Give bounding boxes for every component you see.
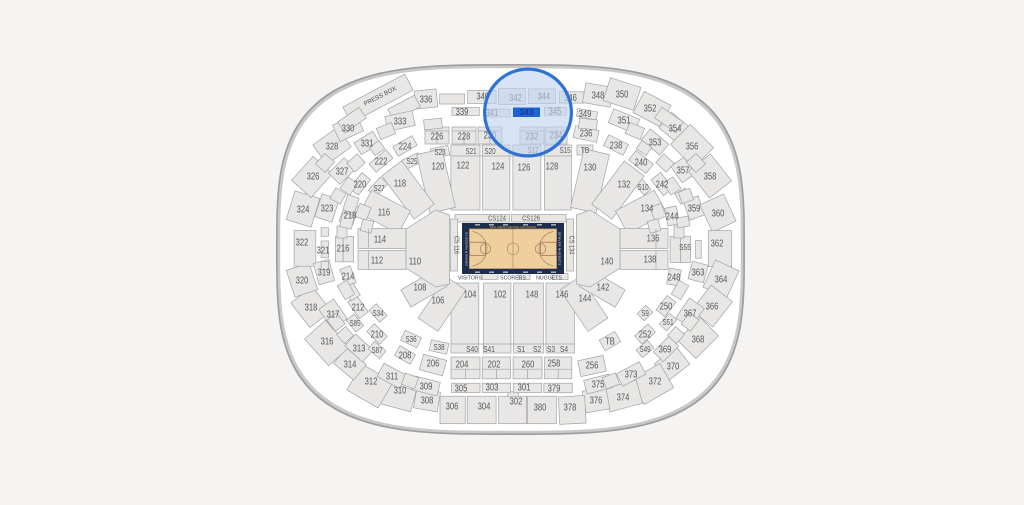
svg-text:303: 303	[486, 381, 499, 392]
svg-text:106: 106	[432, 294, 445, 305]
svg-text:351: 351	[618, 114, 631, 125]
svg-text:126: 126	[518, 161, 531, 172]
svg-text:S85: S85	[349, 319, 360, 328]
svg-text:116: 116	[378, 206, 390, 217]
svg-text:S34: S34	[372, 309, 383, 318]
svg-text:122: 122	[457, 159, 470, 170]
svg-text:NUGGETS: NUGGETS	[536, 276, 562, 282]
svg-text:BALL ARENA DENVER COLORADO: BALL ARENA DENVER COLORADO	[490, 225, 537, 229]
svg-text:370: 370	[667, 360, 680, 371]
svg-text:252: 252	[639, 328, 652, 339]
svg-text:363: 363	[692, 266, 705, 277]
svg-text:331: 331	[361, 137, 374, 148]
svg-text:112: 112	[371, 254, 383, 265]
svg-text:102: 102	[494, 288, 507, 299]
svg-text:242: 242	[656, 178, 669, 189]
svg-text:304: 304	[478, 400, 491, 411]
svg-text:S20: S20	[484, 147, 495, 156]
svg-text:108: 108	[414, 281, 427, 292]
svg-text:S87: S87	[371, 346, 382, 355]
svg-text:TB: TB	[581, 145, 589, 155]
svg-text:SCORERS: SCORERS	[500, 276, 526, 282]
svg-text:324: 324	[297, 203, 310, 214]
svg-text:353: 353	[649, 136, 662, 147]
svg-text:316: 316	[321, 335, 334, 346]
svg-text:S40: S40	[466, 344, 478, 354]
svg-text:S15: S15	[559, 146, 570, 155]
svg-text:202: 202	[488, 358, 501, 369]
svg-text:306: 306	[446, 400, 459, 411]
svg-text:360: 360	[712, 207, 725, 218]
svg-text:S55: S55	[679, 242, 691, 252]
svg-text:206: 206	[427, 357, 440, 368]
svg-text:110: 110	[409, 255, 421, 266]
svg-text:148: 148	[526, 288, 539, 299]
svg-text:328: 328	[326, 140, 339, 151]
svg-text:333: 333	[394, 115, 407, 126]
svg-text:224: 224	[399, 140, 412, 151]
svg-text:244: 244	[666, 210, 679, 221]
svg-text:220: 220	[354, 178, 367, 189]
svg-text:378: 378	[564, 401, 577, 412]
svg-text:348: 348	[592, 89, 605, 100]
svg-text:104: 104	[464, 288, 477, 299]
svg-text:302: 302	[510, 395, 523, 406]
svg-text:132: 132	[618, 178, 631, 189]
svg-text:352: 352	[644, 102, 657, 113]
svg-text:114: 114	[374, 233, 386, 244]
svg-text:S41: S41	[483, 344, 495, 354]
svg-text:S21: S21	[465, 147, 476, 156]
svg-text:128: 128	[546, 160, 559, 171]
svg-text:212: 212	[352, 301, 365, 312]
svg-text:228: 228	[458, 130, 471, 141]
svg-text:359: 359	[688, 202, 701, 213]
svg-text:320: 320	[296, 274, 309, 285]
svg-text:367: 367	[684, 307, 697, 318]
svg-text:380: 380	[534, 401, 547, 412]
svg-text:354: 354	[669, 122, 682, 133]
svg-text:134: 134	[641, 202, 654, 213]
svg-text:250: 250	[660, 300, 673, 311]
svg-text:208: 208	[399, 349, 412, 360]
svg-text:214: 214	[342, 270, 355, 281]
svg-text:311: 311	[386, 370, 398, 381]
svg-text:322: 322	[296, 236, 309, 247]
svg-text:S4: S4	[560, 344, 569, 354]
svg-text:357: 357	[677, 164, 690, 175]
svg-text:317: 317	[327, 308, 340, 319]
svg-text:S27: S27	[373, 184, 384, 193]
svg-text:330: 330	[342, 122, 355, 133]
svg-text:362: 362	[711, 237, 724, 248]
svg-text:S9: S9	[641, 309, 649, 318]
svg-text:CS 116: CS 116	[452, 236, 460, 255]
svg-text:DENVER NUGGETS: DENVER NUGGETS	[465, 232, 469, 266]
svg-text:376: 376	[590, 394, 603, 405]
svg-text:S23: S23	[434, 148, 445, 157]
svg-text:120: 120	[432, 160, 445, 171]
svg-text:248: 248	[668, 271, 681, 282]
svg-text:374: 374	[617, 391, 630, 402]
svg-text:138: 138	[644, 253, 657, 264]
svg-text:222: 222	[375, 155, 388, 166]
svg-text:349: 349	[579, 108, 592, 119]
svg-text:S25: S25	[406, 157, 417, 166]
svg-text:S10: S10	[637, 183, 648, 192]
svg-text:258: 258	[548, 357, 561, 368]
svg-text:358: 358	[704, 170, 717, 181]
svg-text:S36: S36	[405, 335, 416, 344]
svg-text:S51: S51	[662, 318, 673, 327]
svg-text:312: 312	[365, 375, 378, 386]
svg-text:238: 238	[610, 139, 623, 150]
svg-text:301: 301	[518, 381, 531, 392]
svg-text:343: 343	[519, 107, 533, 117]
svg-text:218: 218	[344, 209, 357, 220]
svg-text:309: 309	[420, 380, 433, 391]
svg-text:210: 210	[371, 328, 384, 339]
svg-text:327: 327	[336, 165, 349, 176]
svg-text:339: 339	[456, 106, 469, 117]
svg-text:364: 364	[715, 273, 728, 284]
svg-text:326: 326	[307, 170, 320, 181]
svg-text:318: 318	[305, 301, 318, 312]
svg-text:321: 321	[317, 244, 330, 255]
svg-text:130: 130	[584, 161, 597, 172]
svg-text:136: 136	[647, 232, 660, 243]
svg-text:TB: TB	[605, 335, 615, 346]
svg-text:366: 366	[706, 300, 719, 311]
svg-text:DENVER NUGGETS: DENVER NUGGETS	[558, 232, 562, 266]
svg-text:323: 323	[321, 202, 334, 213]
svg-text:375: 375	[592, 378, 605, 389]
svg-text:CS126: CS126	[522, 215, 540, 223]
svg-text:S3: S3	[547, 344, 555, 354]
svg-text:CS 134: CS 134	[567, 236, 575, 255]
svg-text:S38: S38	[433, 343, 444, 352]
svg-text:336: 336	[420, 93, 433, 104]
svg-text:350: 350	[616, 88, 629, 99]
svg-text:308: 308	[421, 394, 434, 405]
svg-text:368: 368	[692, 333, 705, 344]
svg-text:CS124: CS124	[488, 215, 506, 223]
svg-text:305: 305	[455, 382, 468, 393]
svg-text:373: 373	[625, 368, 638, 379]
svg-text:S2: S2	[533, 344, 541, 354]
svg-text:S49: S49	[639, 345, 650, 354]
svg-text:S1: S1	[517, 344, 525, 354]
svg-text:319: 319	[318, 266, 331, 277]
svg-text:314: 314	[344, 358, 357, 369]
svg-text:146: 146	[556, 288, 569, 299]
svg-text:356: 356	[686, 140, 699, 151]
svg-text:204: 204	[456, 358, 469, 369]
svg-text:144: 144	[579, 292, 592, 303]
svg-text:260: 260	[522, 358, 535, 369]
svg-text:256: 256	[586, 359, 599, 370]
svg-text:372: 372	[649, 375, 662, 386]
svg-text:118: 118	[394, 177, 406, 188]
svg-text:313: 313	[353, 342, 366, 353]
svg-text:140: 140	[601, 255, 614, 266]
svg-text:142: 142	[597, 281, 610, 292]
svg-text:236: 236	[580, 127, 593, 138]
svg-text:216: 216	[337, 242, 350, 253]
svg-text:369: 369	[659, 343, 672, 354]
svg-text:226: 226	[431, 130, 444, 141]
svg-text:310: 310	[394, 384, 407, 395]
svg-text:VISITORS: VISITORS	[458, 276, 483, 282]
svg-text:124: 124	[492, 160, 505, 171]
svg-text:379: 379	[548, 382, 561, 393]
svg-text:240: 240	[635, 156, 648, 167]
